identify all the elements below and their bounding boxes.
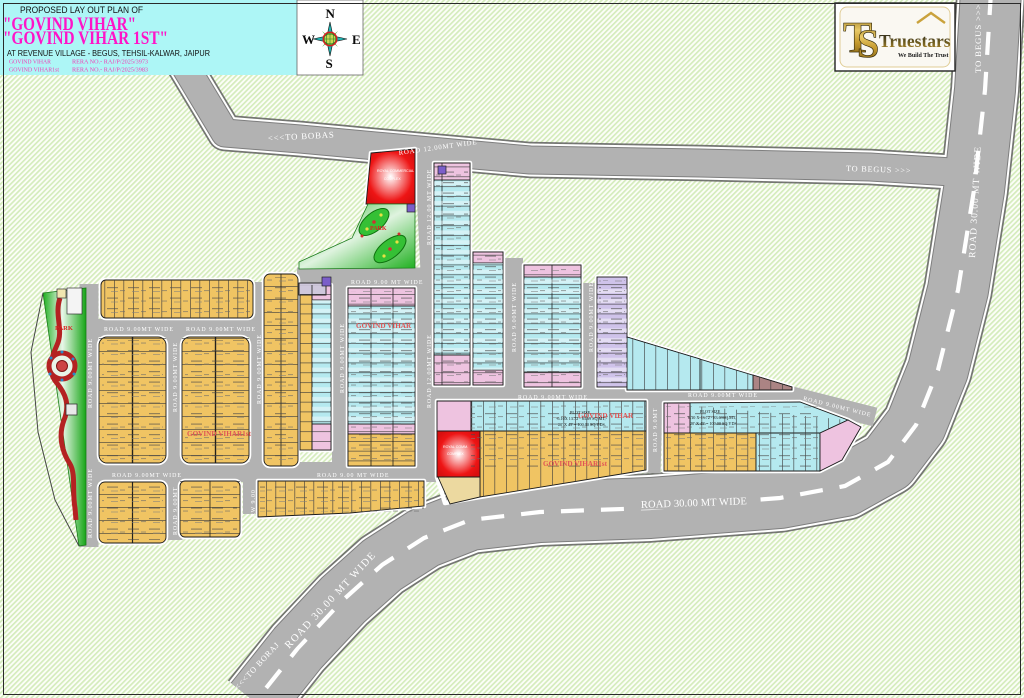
svg-text:ROAD 9.00MT: ROAD 9.00MT [173, 487, 179, 535]
svg-text:ROAD 9.00MT WIDE: ROAD 9.00MT WIDE [186, 327, 256, 333]
svg-text:ROAD 12.00 MT WIDE: ROAD 12.00 MT WIDE [427, 169, 433, 245]
svg-text:GOVIND VIHAR1st: GOVIND VIHAR1st [9, 67, 59, 74]
svg-text:AT REVENUE VILLAGE - BEGUS, TE: AT REVENUE VILLAGE - BEGUS, TEHSIL-KALWA… [7, 48, 210, 58]
svg-text:ROAD 9.00MT WIDE: ROAD 9.00MT WIDE [589, 282, 595, 352]
svg-text:TO BEGUS >>>: TO BEGUS >>> [973, 4, 983, 73]
svg-text:RW 9.00: RW 9.00 [251, 489, 257, 517]
svg-text:20' X 45' = 100.00 SQ.YDS: 20' X 45' = 100.00 SQ.YDS [690, 421, 737, 426]
svg-text:We Build The Trust: We Build The Trust [898, 53, 949, 59]
svg-text:GOVIND VIHAR: GOVIND VIHAR [356, 322, 412, 330]
svg-text:PLOT SIZE: PLOT SIZE [570, 410, 591, 415]
svg-text:PARK: PARK [55, 325, 73, 332]
svg-text:ROAD 9.00MT WIDE: ROAD 9.00MT WIDE [88, 338, 94, 408]
svg-text:PROPOSED LAY OUT PLAN OF: PROPOSED LAY OUT PLAN OF [20, 4, 143, 15]
svg-text:COMPLEX: COMPLEX [447, 452, 464, 456]
svg-text:W: W [302, 32, 315, 47]
svg-text:ROAD 9.00MT WIDE: ROAD 9.00MT WIDE [512, 282, 518, 352]
svg-text:ROYAL COMM.: ROYAL COMM. [443, 445, 468, 449]
svg-text:ROAD 9.00MT WIDE: ROAD 9.00MT WIDE [518, 395, 588, 401]
svg-text:COMPLEX: COMPLEX [384, 177, 401, 181]
svg-text:GOVIND VIHAR1st: GOVIND VIHAR1st [543, 460, 608, 468]
svg-text:"GOVIND VIHAR 1ST": "GOVIND VIHAR 1ST" [3, 29, 168, 49]
svg-text:Truestars: Truestars [879, 31, 951, 51]
svg-text:N: N [326, 6, 336, 21]
svg-text:ROAD 9.00MT WIDE: ROAD 9.00MT WIDE [104, 327, 174, 333]
svg-text:ROAD 9.00MT WIDE: ROAD 9.00MT WIDE [257, 334, 263, 404]
svg-text:ROAD 9.0MT: ROAD 9.0MT [653, 408, 659, 452]
svg-text:ROAD 9.00MT WIDE: ROAD 9.00MT WIDE [688, 393, 758, 399]
svg-text:ROAD 12.00MT WIDE: ROAD 12.00MT WIDE [427, 334, 433, 408]
svg-text:ROAD 9.00MT WIDE: ROAD 9.00MT WIDE [173, 342, 179, 412]
svg-text:ROAD 9.00MT WIDE: ROAD 9.00MT WIDE [112, 473, 182, 479]
svg-text:S: S [857, 21, 879, 66]
svg-text:ROAD 9.00 MT WIDE: ROAD 9.00 MT WIDE [317, 473, 389, 479]
svg-text:ROAD 9.00MT WIDE: ROAD 9.00MT WIDE [88, 468, 94, 538]
svg-text:S: S [326, 56, 333, 71]
svg-text:ROAD 9.00 MT WIDE: ROAD 9.00 MT WIDE [351, 280, 423, 286]
svg-text:RERA NO.- RAJ/P/2025/3973: RERA NO.- RAJ/P/2025/3973 [72, 59, 148, 66]
svg-text:RERA NO.- RAJ/P/2025/3983: RERA NO.- RAJ/P/2025/3983 [72, 67, 148, 74]
svg-text:GOVIND VIHAR: GOVIND VIHAR [9, 59, 52, 66]
svg-text:E: E [352, 32, 361, 47]
svg-text:ROAD 9.00MT WIDE: ROAD 9.00MT WIDE [340, 323, 346, 393]
svg-text:PARK: PARK [370, 226, 387, 232]
svg-text:GOVIND VIHAR1st: GOVIND VIHAR1st [187, 430, 252, 438]
svg-text:PLOT SIZE: PLOT SIZE [700, 409, 721, 414]
svg-text:ROYAL COMMERCIAL: ROYAL COMMERCIAL [377, 169, 414, 173]
